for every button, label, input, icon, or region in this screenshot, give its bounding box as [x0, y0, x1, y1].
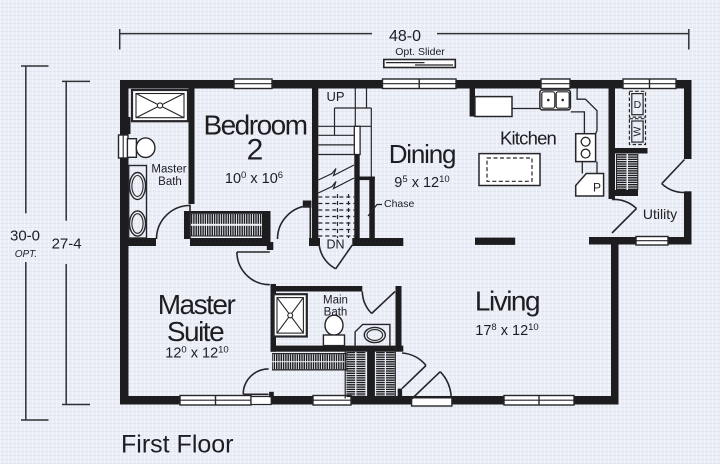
svg-text:95 x 1210: 95 x 1210	[394, 174, 449, 191]
svg-text:D: D	[634, 99, 642, 111]
svg-text:178 x 1210: 178 x 1210	[475, 322, 538, 339]
svg-text:Bath: Bath	[158, 176, 182, 188]
svg-text:Utility: Utility	[643, 206, 677, 222]
svg-text:27-4: 27-4	[52, 236, 82, 253]
svg-text:48-0: 48-0	[389, 28, 421, 45]
svg-text:Kitchen: Kitchen	[500, 127, 557, 148]
svg-text:Dining: Dining	[389, 139, 456, 169]
svg-text:Master: Master	[151, 164, 186, 176]
svg-text:120 x 1210: 120 x 1210	[165, 345, 228, 362]
svg-text:2: 2	[247, 134, 264, 167]
svg-text:Main: Main	[323, 295, 348, 307]
svg-text:W: W	[632, 126, 644, 136]
svg-text:Opt. Slider: Opt. Slider	[395, 46, 445, 58]
svg-text:Chase: Chase	[384, 198, 415, 210]
svg-text:UP: UP	[326, 89, 344, 104]
svg-text:Suite: Suite	[167, 316, 224, 347]
svg-text:100 x 106: 100 x 106	[225, 170, 283, 187]
svg-text:OPT.: OPT.	[15, 249, 37, 260]
svg-text:30-0: 30-0	[10, 228, 40, 245]
svg-text:Living: Living	[475, 286, 539, 317]
svg-text:P: P	[593, 181, 601, 195]
svg-text:First Floor: First Floor	[121, 431, 234, 459]
svg-text:DN: DN	[326, 238, 344, 252]
